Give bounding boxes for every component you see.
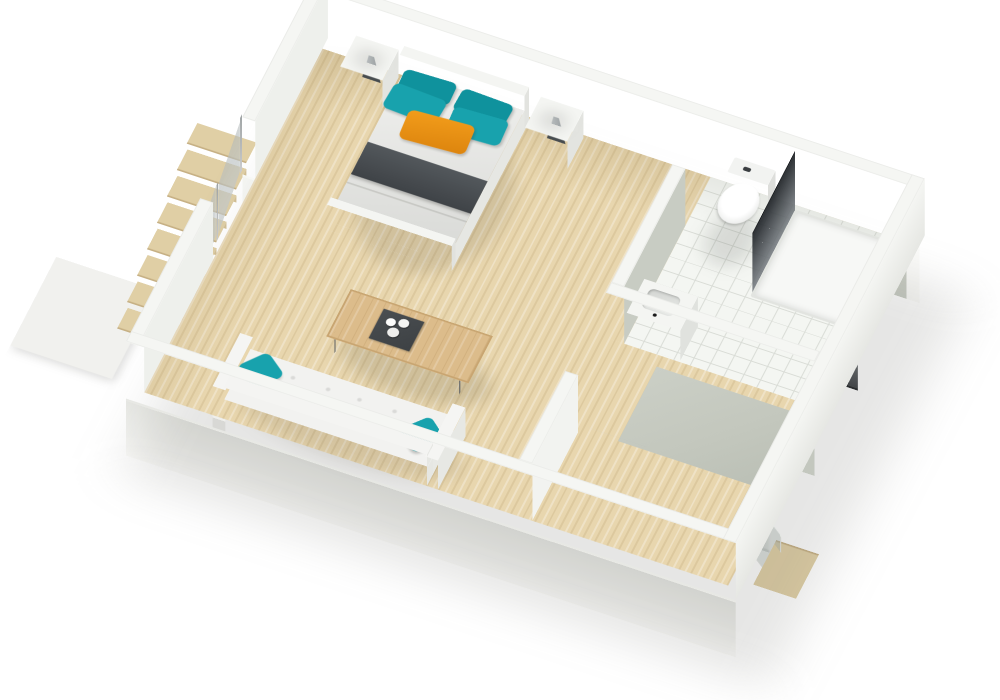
tray-cup-1	[384, 317, 397, 327]
tray-cup-3	[385, 326, 401, 339]
railing-post-2	[216, 181, 218, 241]
railing-post-1	[240, 114, 242, 174]
floorplan-render	[0, 0, 1000, 700]
table-tray	[369, 309, 425, 352]
tray-cup-2	[397, 318, 411, 329]
toilet-tank-top	[727, 157, 775, 185]
vase-right-shadow	[538, 110, 569, 131]
vase-left-shadow	[353, 49, 384, 70]
sink-faucet-dot	[652, 313, 657, 317]
toilet-flush-button	[742, 166, 751, 172]
